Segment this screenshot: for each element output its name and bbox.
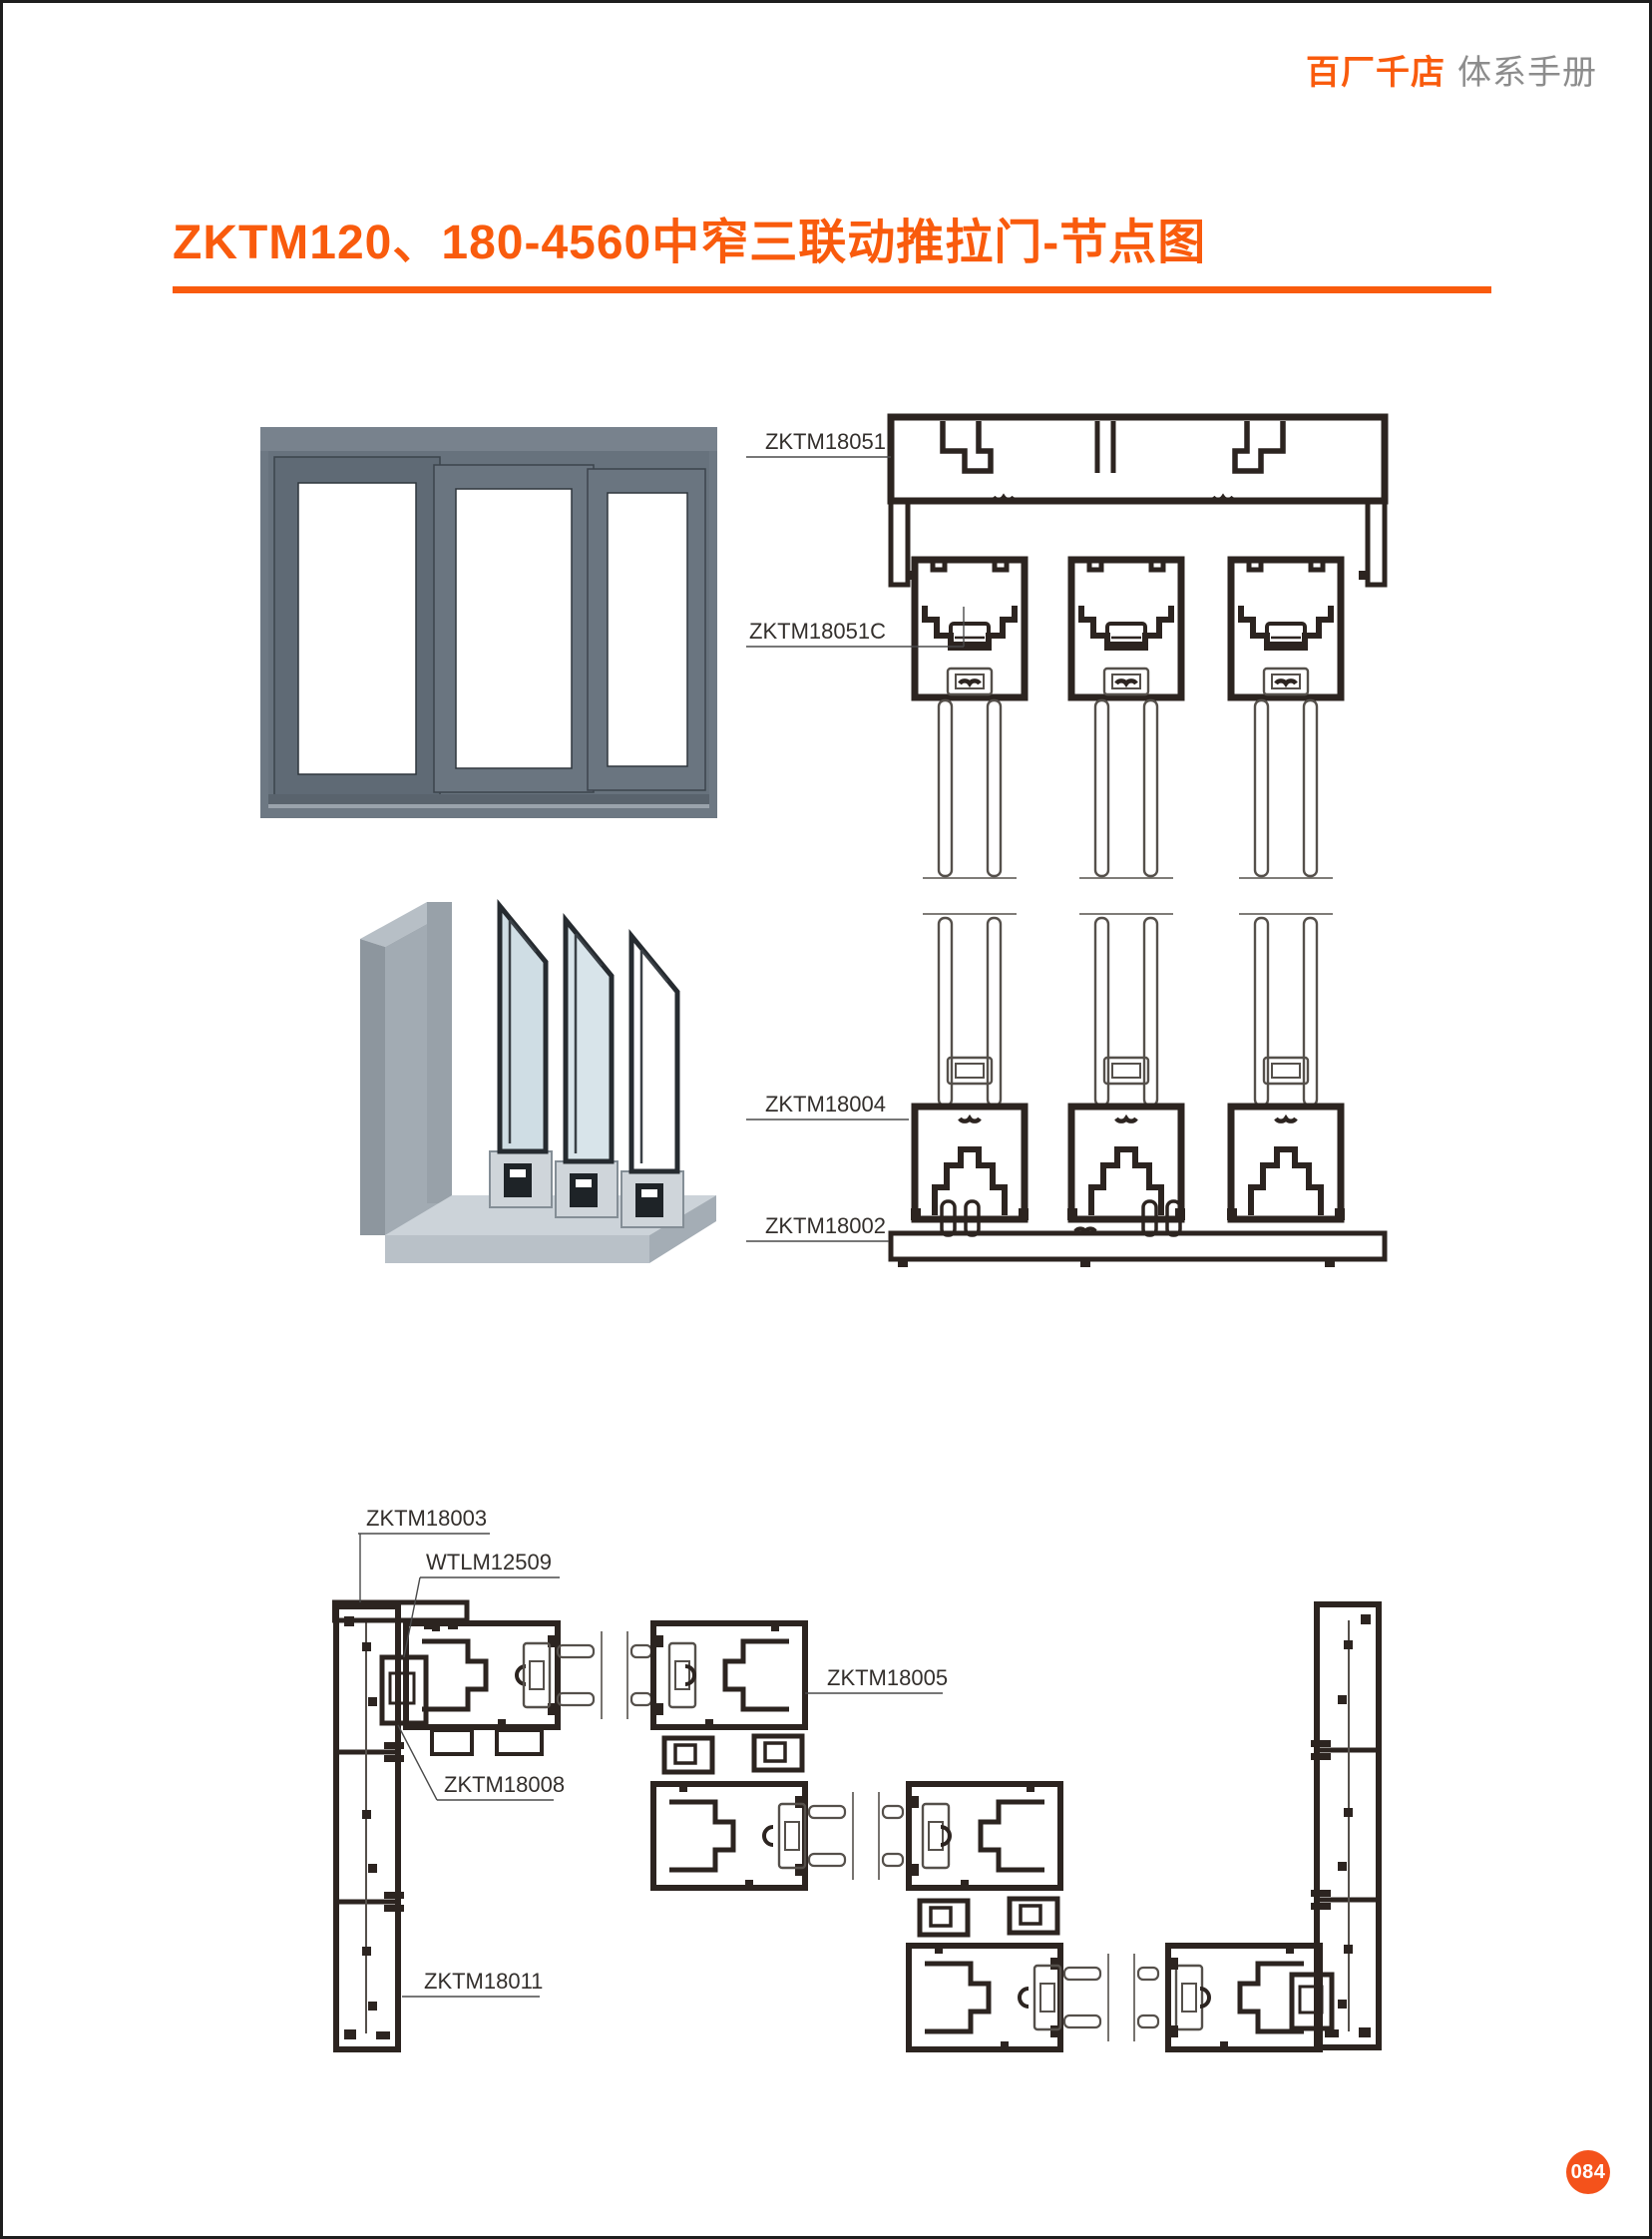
interlock-4 (1010, 1899, 1057, 1933)
sash-stile-a (406, 1623, 558, 1727)
page-number-badge: 084 (1566, 2150, 1610, 2194)
sash-top-rail-1 (915, 560, 1025, 697)
label-jamb-top: ZKTM18003 (366, 1506, 487, 1531)
label-sash-top-rail: ZKTM18051C (749, 619, 886, 644)
page-title: ZKTM120、180-4560中窄三联动推拉门-节点图 (173, 203, 1206, 272)
plan-section-labels: ZKTM18003 WTLM12509 ZKTM18008 ZKTM18005 … (358, 1506, 948, 1997)
glazing-unit-2 (1079, 669, 1173, 1106)
interlock-3 (920, 1901, 968, 1935)
vertical-section-labels: ZKTM18051 ZKTM18051C ZKTM18004 ZKTM18002 (746, 429, 964, 1241)
label-filler: ZKTM18008 (444, 1772, 565, 1797)
sash-stile-c (653, 1784, 805, 1888)
page-header: 百厂千店 体系手册 (1306, 45, 1597, 94)
cross-section-render (332, 844, 726, 1278)
label-head-frame: ZKTM18051 (765, 429, 886, 454)
sash-stile-f (1168, 1946, 1320, 2049)
plan-section-drawing: ZKTM18003 WTLM12509 ZKTM18008 ZKTM18005 … (332, 1498, 1390, 2076)
door-render (260, 427, 717, 818)
label-sill-track: ZKTM18002 (765, 1213, 886, 1238)
label-sash-bottom-rail: ZKTM18004 (765, 1092, 886, 1117)
sash-bottom-rail-3 (1227, 1107, 1345, 1220)
label-jamb-lower: ZKTM18011 (424, 1969, 543, 1994)
title-underline (173, 286, 1491, 293)
label-interlock-stile: ZKTM18005 (827, 1665, 948, 1690)
label-connector: WTLM12509 (426, 1550, 552, 1574)
header-subtitle: 体系手册 (1457, 45, 1597, 94)
sash-stile-e (909, 1946, 1060, 2049)
glass-run-2 (779, 1792, 949, 1880)
brand-logo-text: 百厂千店 (1306, 45, 1445, 94)
sill-track-profile (891, 1201, 1385, 1267)
glazing-unit-3 (1239, 669, 1333, 1106)
interlock-2 (754, 1736, 802, 1770)
sash-top-rail-3 (1231, 560, 1341, 697)
right-connector-profile (1292, 1975, 1332, 2028)
sash-stile-d (909, 1784, 1060, 1888)
vertical-section-drawing: ZKTM18051 ZKTM18051C ZKTM18004 ZKTM18002 (746, 407, 1393, 1280)
manual-page: 百厂千店 体系手册 ZKTM120、180-4560中窄三联动推拉门-节点图 (0, 0, 1652, 2239)
glass-run-1 (524, 1631, 695, 1719)
glazing-unit-1 (923, 669, 1017, 1106)
interlock-1 (664, 1738, 712, 1772)
sash-top-rail-2 (1071, 560, 1181, 697)
